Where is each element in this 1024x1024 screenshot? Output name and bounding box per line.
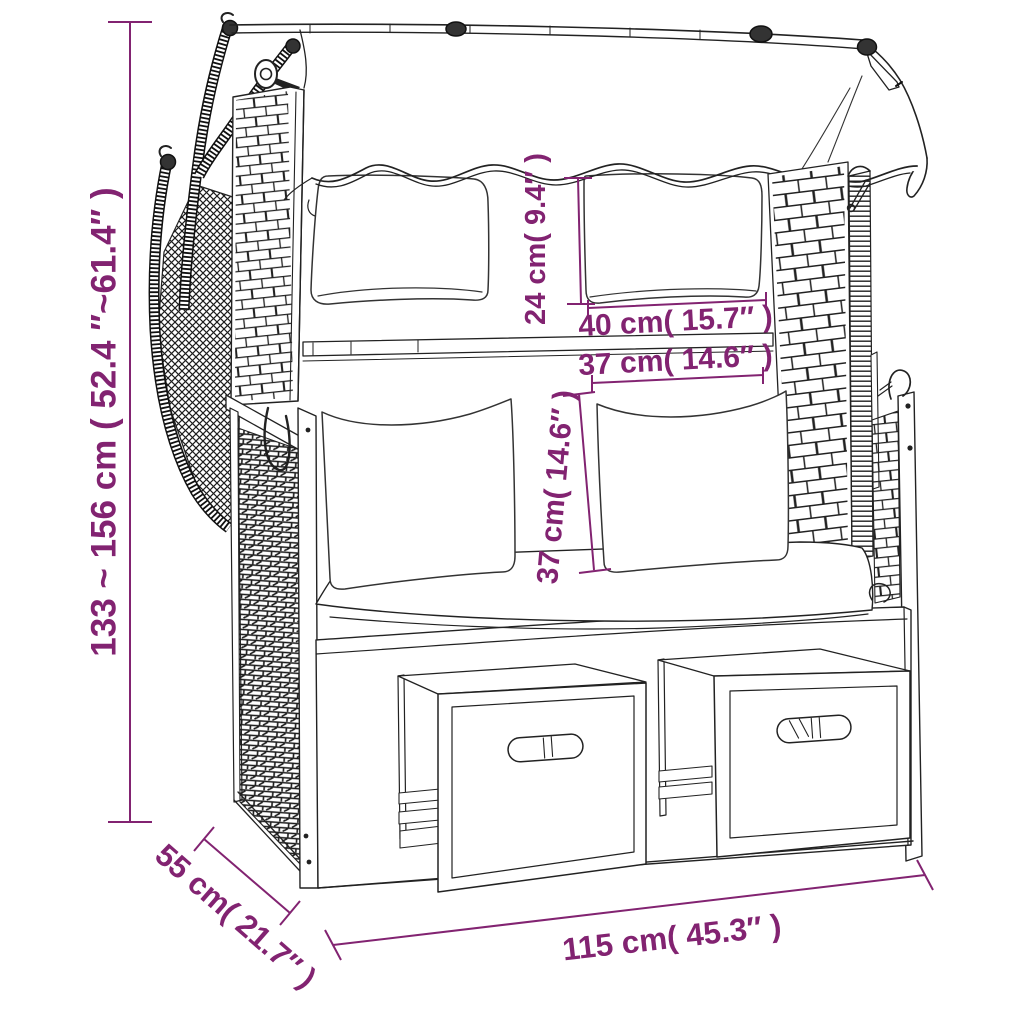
svg-text:24 cm( 9.4″ ): 24 cm( 9.4″ ) xyxy=(520,153,552,325)
svg-text:115 cm( 45.3″ ): 115 cm( 45.3″ ) xyxy=(560,907,783,968)
svg-text:133 ~ 156 cm ( 52.4 ″~61.4″ ): 133 ~ 156 cm ( 52.4 ″~61.4″ ) xyxy=(85,187,124,656)
